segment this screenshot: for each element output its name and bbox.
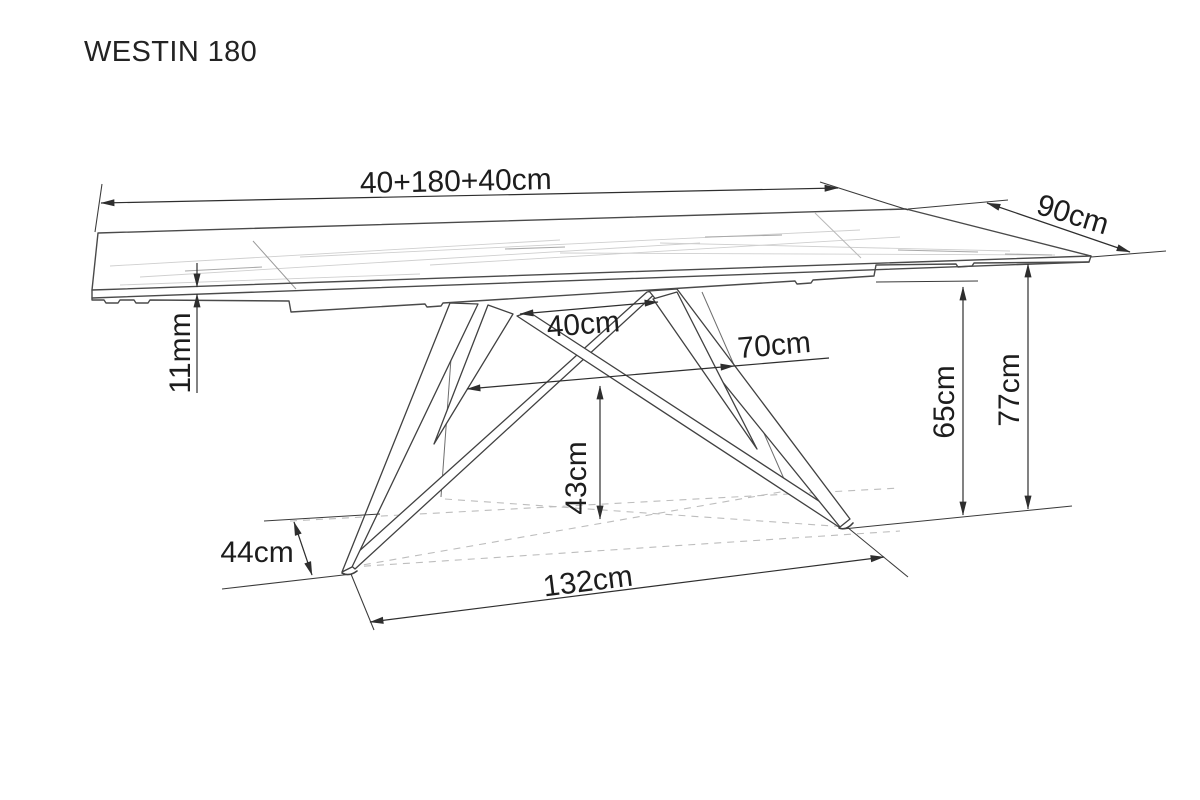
- extension-leaf-seam-right: [815, 213, 861, 258]
- drawing-sheet: WESTIN 180: [0, 0, 1200, 800]
- ext-frame-height-top: [876, 281, 978, 282]
- dim-label-base-mid-span: 70cm: [736, 326, 812, 365]
- tabletop: [92, 209, 1091, 312]
- base-cutout-right: [653, 292, 757, 449]
- dim-label-table-height: 77cm: [993, 353, 1026, 426]
- dim-foot-width: [294, 522, 312, 575]
- ext-base-length-right: [847, 527, 908, 577]
- wood-grain: [110, 230, 1055, 285]
- ext-total-right: [820, 182, 908, 210]
- dim-label-base-top-span: 40cm: [545, 305, 621, 344]
- dim-label-top-thickness: 11mm: [164, 312, 197, 393]
- ground-line-left: [222, 574, 352, 589]
- dim-label-frame-height: 65cm: [928, 365, 961, 438]
- dim-label-depth: 90cm: [1033, 188, 1113, 241]
- underframe-apron: [92, 262, 1089, 312]
- ext-total-left: [95, 184, 102, 232]
- dim-label-total-length: 40+180+40cm: [360, 163, 552, 200]
- dim-label-base-length: 132cm: [541, 560, 634, 604]
- dim-label-clearance-height: 43cm: [560, 441, 593, 514]
- tabletop-edge-band: [92, 256, 1091, 298]
- base-blade-left: [342, 303, 478, 572]
- ground-line-right: [843, 506, 1072, 529]
- table-technical-drawing: 40+180+40cm 90cm 11mm 40cm 70cm 43cm 65c…: [0, 0, 1200, 800]
- ground-lines: [222, 506, 1072, 589]
- extension-leaf-seam-left: [253, 241, 296, 289]
- dim-label-foot-width: 44cm: [220, 536, 293, 569]
